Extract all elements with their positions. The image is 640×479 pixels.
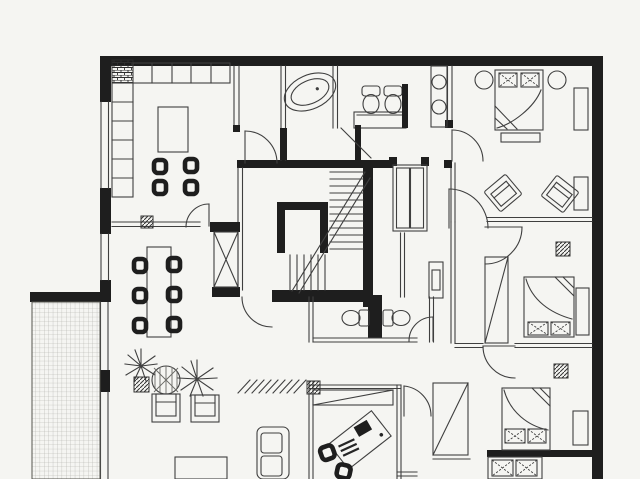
- kitchen: [112, 60, 230, 197]
- sink-basin: [432, 75, 446, 89]
- main-bathroom: [278, 65, 447, 160]
- lounge-chair: [541, 175, 579, 213]
- sink-basin: [432, 100, 446, 114]
- bedroom-2: [485, 242, 589, 343]
- wardrobe: [574, 88, 588, 130]
- wall-door-block: [141, 216, 153, 228]
- mouse-dot: [379, 432, 384, 437]
- stair-core: [210, 172, 370, 297]
- door-office: [404, 386, 431, 416]
- hall-closet: [393, 165, 427, 231]
- office: [307, 381, 470, 479]
- window-left-1: [101, 102, 109, 188]
- sofa: [257, 427, 289, 479]
- window-left-2: [101, 234, 109, 280]
- interior-walls: [112, 66, 592, 479]
- kitchen-chairs: [154, 159, 197, 194]
- closet-top: [313, 390, 393, 405]
- door-master-upper: [452, 130, 483, 161]
- desk: [329, 411, 391, 469]
- double-bed: [502, 388, 550, 450]
- staircase: [290, 172, 370, 293]
- double-bed: [495, 70, 543, 130]
- palm-plant: [178, 360, 217, 396]
- hatch-marker: [556, 242, 570, 256]
- door-kitchen: [245, 131, 277, 163]
- door-bedroom-2: [485, 227, 522, 264]
- bathtub: [278, 65, 341, 118]
- shower-screen: [341, 125, 371, 160]
- floor-hatch-marks: [238, 380, 306, 393]
- dining-area: [134, 247, 180, 337]
- double-bed: [524, 277, 574, 337]
- coffee-table: [175, 457, 227, 479]
- side-cabinet: [574, 177, 588, 210]
- master-bedroom: [475, 70, 588, 213]
- floor-plan-drawing: [0, 0, 640, 479]
- window-left-4: [101, 392, 109, 479]
- elevator: [210, 222, 240, 297]
- terrace-wall: [30, 292, 110, 302]
- door-bedroom-3: [483, 346, 515, 378]
- side-cabinet: [576, 288, 589, 335]
- kitchen-counter-left: [112, 83, 133, 197]
- appliance-block: [112, 60, 133, 83]
- terrace-tile-floor: [32, 302, 100, 479]
- hatch-marker: [554, 364, 568, 378]
- armchair: [152, 394, 180, 422]
- planter-box: [134, 377, 149, 392]
- foot-bench: [501, 133, 540, 142]
- toilet: [384, 86, 402, 114]
- armchair: [191, 395, 219, 422]
- closet-right: [433, 383, 470, 459]
- toilet: [383, 310, 410, 326]
- double-sink-counter: [431, 66, 447, 127]
- vanity-counter: [354, 112, 406, 128]
- stair-break-line: [292, 172, 365, 291]
- window-left-3: [101, 302, 109, 370]
- exterior-walls: [30, 56, 603, 479]
- round-side-table: [475, 71, 493, 89]
- living-area: [125, 349, 306, 479]
- terrace: [32, 302, 100, 479]
- keyboard-lines: [337, 436, 361, 459]
- round-plant: [152, 366, 180, 394]
- floor-plan-page: [0, 0, 640, 479]
- round-side-table: [548, 71, 566, 89]
- door-living: [242, 297, 272, 327]
- dining-chairs: [134, 258, 180, 332]
- wardrobe: [485, 257, 508, 343]
- toilet: [342, 310, 369, 326]
- side-chair: [336, 464, 351, 479]
- dresser: [488, 457, 542, 479]
- side-cabinet: [573, 411, 588, 445]
- bedroom-3: [488, 364, 588, 479]
- kitchen-island: [158, 107, 188, 152]
- hall-cabinet: [429, 262, 443, 298]
- desk-chair: [319, 444, 336, 461]
- toilet: [362, 86, 380, 114]
- lounge-chair: [484, 174, 522, 212]
- door-swings: [186, 130, 522, 416]
- door-dining: [186, 204, 209, 227]
